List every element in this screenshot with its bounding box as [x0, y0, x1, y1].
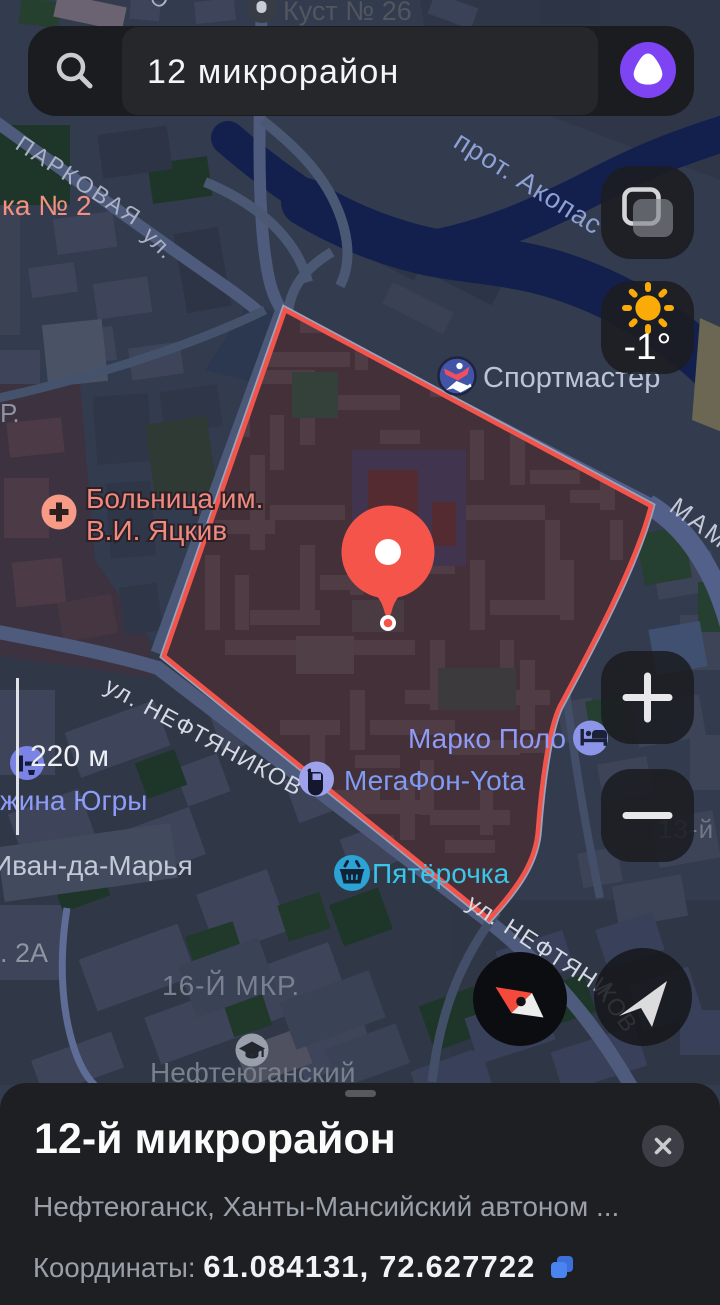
svg-text:ка № 2: ка № 2: [2, 190, 92, 221]
svg-text:жина Югры: жина Югры: [0, 785, 147, 816]
svg-text:Иван-да-Марья: Иван-да-Марья: [0, 850, 193, 881]
svg-text:Р.: Р.: [0, 398, 20, 428]
svg-text:Пятёрочка: Пятёрочка: [372, 858, 510, 889]
svg-text:МегаФон-Yota: МегаФон-Yota: [344, 765, 525, 796]
svg-text:Больница им.: Больница им.: [86, 483, 263, 514]
svg-text:Марко Поло: Марко Поло: [408, 723, 566, 754]
svg-text:В.И. Яцкив: В.И. Яцкив: [86, 515, 227, 546]
svg-text:220 м: 220 м: [30, 740, 109, 773]
svg-text:16-Й МКР.: 16-Й МКР.: [162, 970, 300, 1001]
svg-text:Куст № 26: Куст № 26: [283, 0, 412, 26]
svg-text:. 2А: . 2А: [0, 938, 48, 968]
